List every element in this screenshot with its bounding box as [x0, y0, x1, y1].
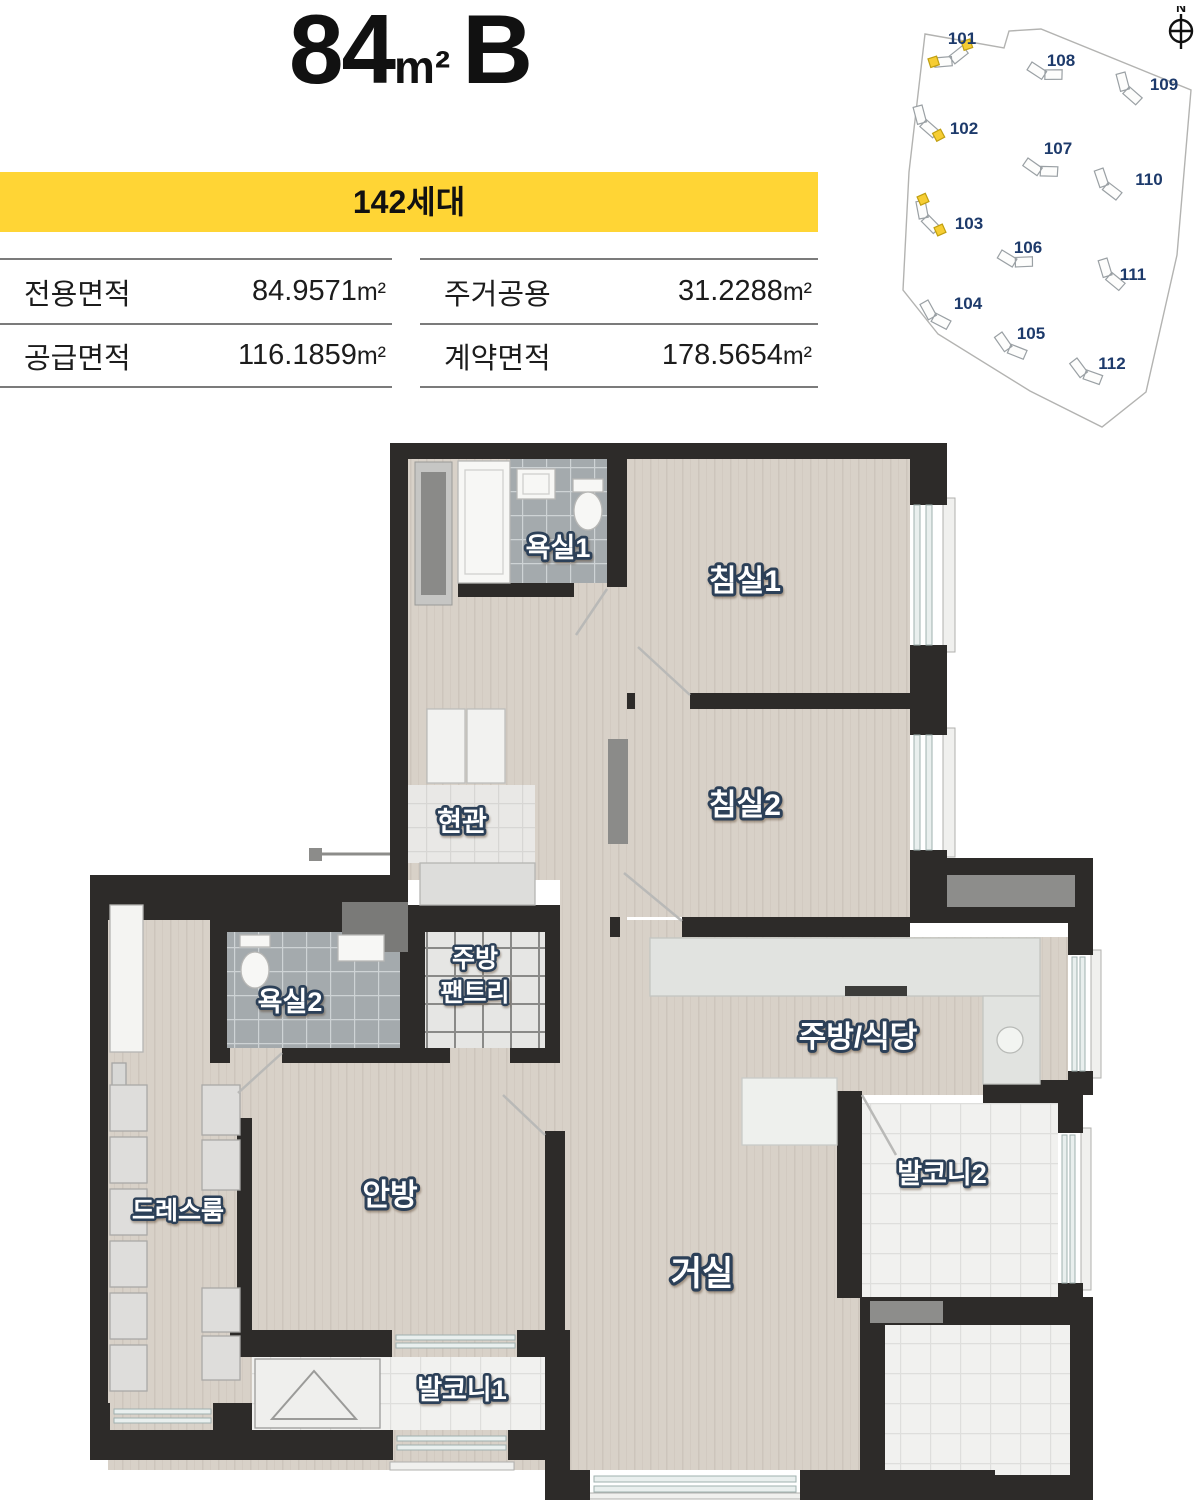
cooktop [845, 986, 907, 996]
area-table-left-column: 전용면적 84.9571m² 공급면적 116.1859m² [0, 258, 392, 392]
building-label-103: 103 [955, 214, 983, 233]
bath2-toilet [241, 952, 269, 988]
compass-north-label: N [1176, 6, 1186, 15]
bath2-sink [338, 935, 384, 961]
household-banner: 142세대 [0, 172, 818, 232]
room-label-entrance: 현관 [437, 807, 487, 837]
title-type: B [462, 0, 531, 104]
shoe-closet [420, 863, 535, 905]
floor-plan: 욕실1 침실1 침실2 현관 주방 팬트리 욕실2 주방/식당 발코니2 드레스… [90, 443, 1115, 1500]
area-label: 계약면적 [444, 335, 551, 377]
entrance-door-marker [309, 848, 390, 861]
area-label: 전용면적 [24, 271, 131, 313]
area-value: 84.9571m² [252, 275, 386, 308]
cabinet [110, 905, 143, 1052]
building-label-111: 111 [1120, 265, 1147, 284]
compass-icon [1169, 14, 1193, 49]
bathtub [458, 461, 510, 583]
household-count: 142세대 [353, 184, 465, 220]
room-label-kitchen: 주방/식당 [799, 1021, 918, 1054]
building-label-110: 110 [1135, 170, 1162, 189]
building-110 [1091, 165, 1124, 204]
building-label-109: 109 [1150, 75, 1178, 94]
building-label-101: 101 [948, 29, 976, 48]
site-map: N [893, 6, 1201, 436]
building-label-104: 104 [954, 294, 983, 313]
hall-closet [427, 709, 465, 783]
area-value: 178.5654m² [662, 339, 812, 372]
area-label: 공급면적 [24, 335, 131, 377]
building-109 [1113, 69, 1144, 108]
building-label-102: 102 [950, 119, 978, 138]
building-label-105: 105 [1017, 324, 1045, 343]
room-label-balcony1: 발코니1 [417, 1375, 507, 1405]
room-label-pantry-1: 주방 [452, 945, 498, 973]
area-value: 31.2288m² [678, 275, 812, 308]
room-label-master: 안방 [362, 1179, 418, 1212]
building-107 [1021, 154, 1060, 182]
room-label-pantry-2: 팬트리 [440, 979, 509, 1007]
area-row-exclusive: 전용면적 84.9571m² [0, 258, 392, 323]
area-table: 전용면적 84.9571m² 공급면적 116.1859m² 주거공용 31.2… [0, 258, 818, 394]
room-label-bath1: 욕실1 [526, 533, 591, 563]
room-label-living: 거실 [671, 1255, 734, 1293]
page-title: 84m²B [0, 0, 820, 122]
title-area-number: 84 [289, 0, 394, 104]
area-row-common: 주거공용 31.2288m² [420, 258, 818, 323]
room-label-bed1: 침실1 [709, 565, 781, 598]
bath2-toilet-tank [240, 935, 270, 947]
building-label-112: 112 [1098, 354, 1125, 373]
balcony2-lower-floor [885, 1325, 1070, 1475]
area-row-contract: 계약면적 178.5654m² [420, 323, 818, 388]
building-label-106: 106 [1014, 238, 1042, 257]
room-label-dressroom: 드레스룸 [132, 1197, 224, 1225]
area-value: 116.1859m² [238, 339, 386, 372]
building-103 [911, 192, 946, 240]
site-boundary [903, 29, 1191, 427]
hall-closet [467, 709, 505, 783]
toilet-tank [573, 479, 603, 492]
balcony2-floor [862, 1103, 1058, 1300]
room-label-bath2: 욕실2 [258, 987, 323, 1017]
title-area-unit: m² [394, 41, 450, 93]
area-label: 주거공용 [444, 271, 551, 313]
kitchen-island [742, 1078, 837, 1145]
toilet [574, 492, 602, 530]
floorplan-page: 84m²B 142세대 전용면적 84.9571m² 공급면적 116.1859… [0, 0, 1201, 1500]
room-label-balcony2: 발코니2 [897, 1159, 987, 1189]
area-row-supply: 공급면적 116.1859m² [0, 323, 392, 388]
building-label-108: 108 [1047, 51, 1075, 70]
building-label-107: 107 [1044, 139, 1072, 158]
area-table-right-column: 주거공용 31.2288m² 계약면적 178.5654m² [420, 258, 818, 392]
kitchen-sink [997, 1027, 1023, 1053]
room-label-bed2: 침실2 [709, 789, 781, 822]
